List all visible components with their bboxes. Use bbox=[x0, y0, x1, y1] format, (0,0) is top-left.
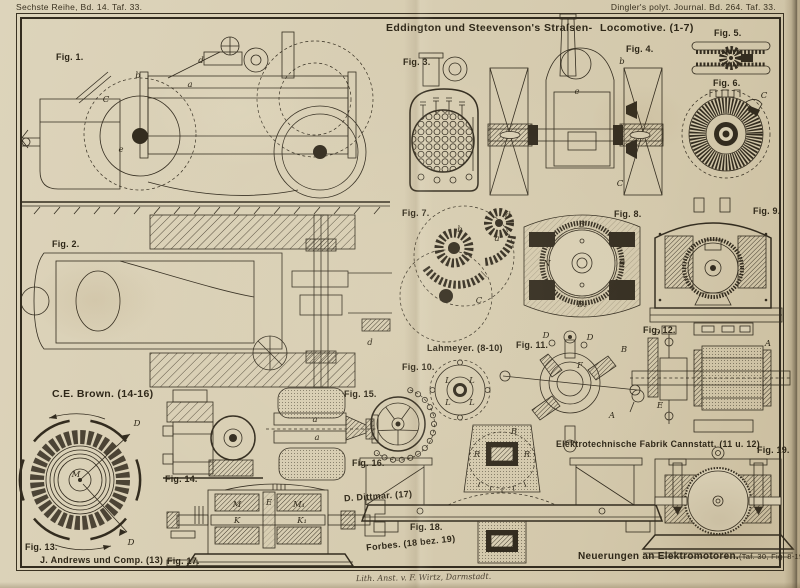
fig-13-drawing: D D M bbox=[15, 410, 155, 557]
fig-14: Fig. 14. bbox=[163, 386, 267, 486]
fig-3-drawing bbox=[393, 53, 487, 203]
part-label: E bbox=[265, 498, 273, 508]
fig-3: Fig. 3. bbox=[393, 53, 487, 203]
bottom-title: Neuerungen an Elektromotoren.(Taf. 30, F… bbox=[578, 551, 800, 562]
part-label: e bbox=[118, 145, 123, 155]
caption-lahmeyer: Lahmeyer. (8-10) bbox=[427, 343, 503, 353]
part-label: b bbox=[619, 57, 624, 67]
fig-13-label: Fig. 13. bbox=[25, 542, 58, 552]
part-label: C bbox=[103, 95, 110, 105]
part-label: L bbox=[444, 376, 451, 386]
fig-1-label: Fig. 1. bbox=[56, 52, 83, 62]
part-label: N bbox=[542, 259, 551, 269]
part-label: B₁ bbox=[576, 300, 587, 310]
part-label: C bbox=[761, 91, 768, 101]
part-label: K bbox=[233, 516, 241, 526]
fig-3-label: Fig. 3. bbox=[403, 57, 430, 67]
fig-8-label: Fig. 8. bbox=[614, 209, 641, 219]
imprint: Lith. Anst. v. F. Wirtz, Darmstadt. bbox=[356, 572, 491, 583]
part-label: a bbox=[314, 433, 319, 443]
part-label: B bbox=[578, 220, 585, 230]
part-label: a bbox=[312, 415, 317, 425]
fig-5: Fig. 5. bbox=[686, 28, 776, 78]
part-label: F bbox=[576, 361, 584, 371]
part-label: L bbox=[468, 376, 475, 386]
fig-19: Fig. 19. bbox=[643, 445, 793, 568]
fig-8-drawing: B N S B₁ bbox=[520, 203, 648, 337]
bottom-title-ref: (Taf. 30, Fig. 8-19 Taf. 33.) bbox=[739, 552, 800, 561]
header-right-text: Dingler's polyt. Journal. Bd. 264. Taf. … bbox=[611, 2, 776, 12]
fig-8: B N S B₁ Fig. 8. bbox=[520, 203, 648, 337]
part-label: D bbox=[127, 538, 135, 548]
fig-16-label: Fig. 16. bbox=[352, 458, 385, 468]
part-label: C bbox=[617, 179, 624, 189]
fig-18-label: Fig. 18. bbox=[410, 522, 443, 532]
fig-14-drawing bbox=[163, 386, 267, 486]
fig-13: D D M Fig. 13. bbox=[15, 410, 155, 557]
fig-12-label: Fig. 12. bbox=[643, 325, 676, 335]
fig-14-label: Fig. 14. bbox=[165, 474, 198, 484]
part-label: A bbox=[764, 339, 771, 349]
part-label: a bbox=[187, 80, 192, 90]
part-label: D bbox=[586, 333, 594, 343]
fig-6: C Fig. 6. bbox=[680, 76, 775, 184]
plate-title-right: Locomotive. (1-7) bbox=[600, 22, 694, 34]
fig-15-label: Fig. 15. bbox=[344, 389, 377, 399]
fig-11-label: Fig. 11. bbox=[516, 340, 548, 350]
fig-17-label: Fig. 17. bbox=[167, 556, 200, 566]
part-label: B bbox=[620, 345, 627, 355]
part-label: d bbox=[367, 338, 373, 348]
part-label: R bbox=[523, 450, 531, 460]
fig-7: a b d C Fig. 7. bbox=[396, 198, 531, 343]
fig-7-label: Fig. 7. bbox=[402, 208, 429, 218]
fig-6-drawing: C bbox=[680, 76, 775, 184]
fig-6-label: Fig. 6. bbox=[713, 78, 740, 88]
part-label: K₁ bbox=[296, 516, 307, 526]
fig-7-drawing: a b d C bbox=[396, 198, 531, 343]
bottom-title-text: Neuerungen an Elektromotoren. bbox=[578, 551, 739, 562]
fig-4-label: Fig. 4. bbox=[626, 44, 653, 54]
part-label: M₁ bbox=[292, 500, 305, 510]
fig-4: b e C Fig. 4. bbox=[488, 36, 663, 204]
part-label: M bbox=[232, 500, 242, 510]
part-label: R bbox=[473, 450, 481, 460]
fig-9-drawing bbox=[650, 196, 790, 338]
part-label: M bbox=[71, 470, 81, 480]
plate-page: Sechste Reihe, Bd. 14. Taf. 33. Dingler'… bbox=[0, 0, 800, 588]
part-label: b bbox=[135, 71, 140, 81]
part-label: b bbox=[457, 225, 462, 235]
caption-andrews: J. Andrews und Comp. (13) bbox=[40, 555, 163, 565]
part-label: L bbox=[468, 398, 475, 408]
fig-4-drawing: b e C bbox=[488, 36, 663, 204]
fig-19-drawing bbox=[643, 445, 793, 568]
caption-brown: C.E. Brown. (14-16) bbox=[52, 388, 153, 400]
fig-5-label: Fig. 5. bbox=[714, 28, 741, 38]
caption-cannstatt: Elektrotechnische Fabrik Cannstatt. (11 … bbox=[556, 439, 760, 449]
fig-1: a b C d e Fig. 1. bbox=[20, 24, 392, 216]
header-left-text: Sechste Reihe, Bd. 14. Taf. 33. bbox=[16, 2, 142, 12]
scan-bottom-edge bbox=[0, 582, 800, 588]
part-label: e bbox=[574, 87, 579, 97]
fig-2: d Fig. 2. bbox=[20, 213, 392, 391]
fig-19-label: Fig. 19. bbox=[757, 445, 790, 455]
part-label: S bbox=[619, 259, 625, 269]
part-label: D bbox=[133, 419, 141, 429]
part-label: C bbox=[476, 296, 483, 306]
fig-2-label: Fig. 2. bbox=[52, 239, 79, 249]
fig-9: Fig. 9. bbox=[650, 196, 790, 338]
fig-10-label: Fig. 10. bbox=[402, 362, 435, 372]
plate-title-left: Eddington und Steevenson's Straſsen- bbox=[386, 22, 593, 34]
part-label: d bbox=[198, 56, 204, 66]
part-label: a bbox=[494, 234, 499, 244]
fig-9-label: Fig. 9. bbox=[753, 206, 780, 216]
part-label: d bbox=[505, 211, 511, 221]
